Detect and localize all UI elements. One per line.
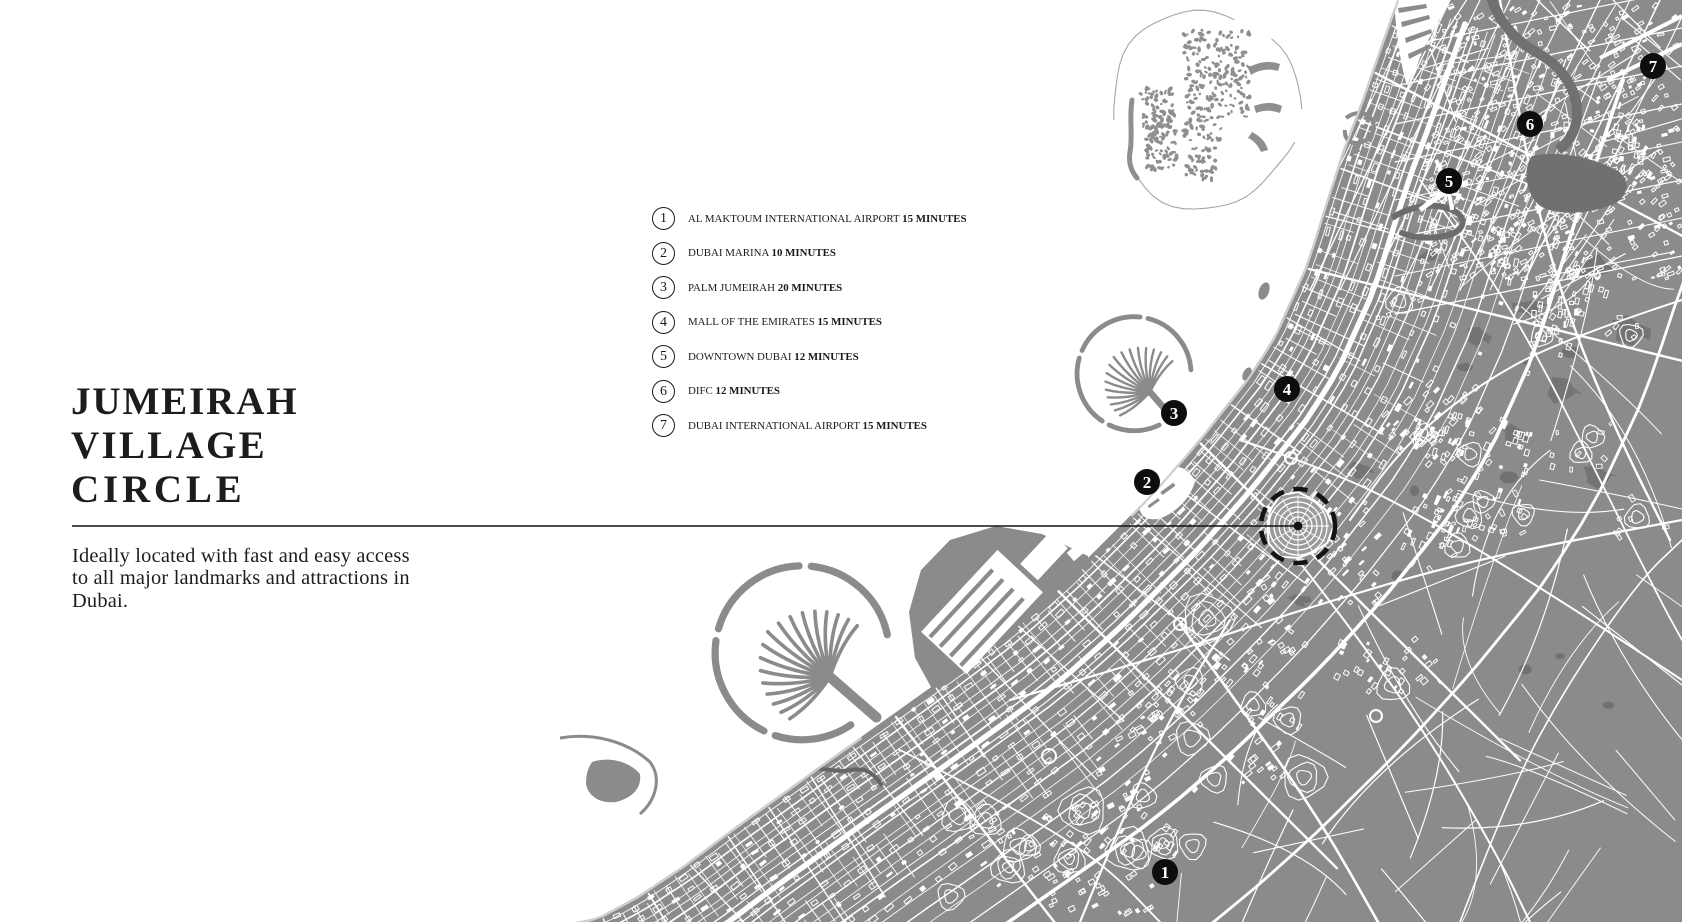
svg-text:4: 4: [1283, 380, 1292, 399]
svg-text:3: 3: [1170, 404, 1179, 423]
svg-text:5: 5: [1445, 172, 1454, 191]
svg-text:7: 7: [1649, 57, 1658, 76]
svg-text:1: 1: [1161, 863, 1170, 882]
svg-text:2: 2: [1143, 473, 1152, 492]
svg-text:6: 6: [1526, 115, 1535, 134]
